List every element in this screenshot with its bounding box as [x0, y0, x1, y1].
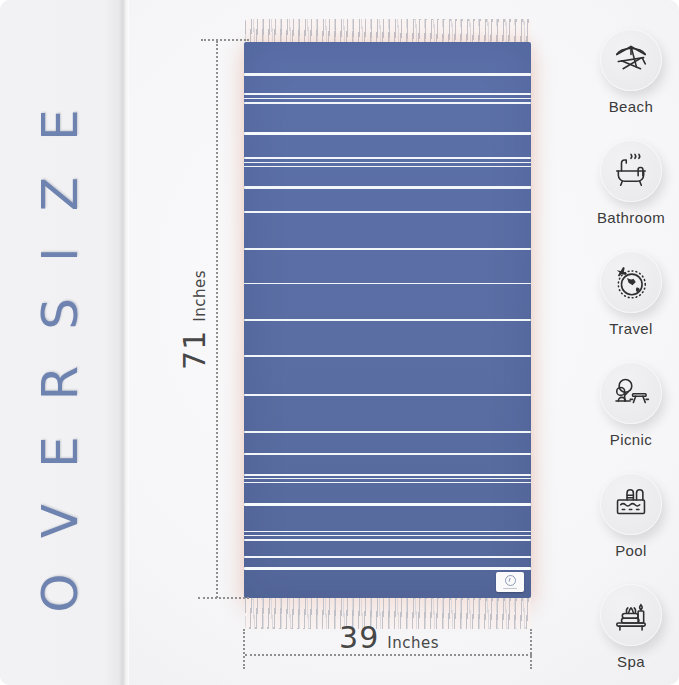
towel-stripe — [244, 474, 531, 476]
use-case-label: Beach — [609, 98, 654, 115]
picnic-icon — [600, 362, 662, 424]
product-infographic: OVERSIZE 71 Inches 39 Inches Beach Bathr… — [0, 0, 679, 685]
towel-stripe — [244, 211, 531, 213]
use-case-label: Picnic — [610, 431, 652, 448]
towel-stripe — [244, 482, 531, 484]
oversize-label: OVERSIZE — [31, 73, 89, 612]
use-case-label: Bathroom — [597, 209, 665, 226]
use-case-label: Pool — [615, 542, 647, 559]
towel-stripe — [244, 186, 531, 189]
beach-icon — [600, 29, 662, 91]
height-unit: Inches — [191, 270, 209, 322]
towel-stripe — [244, 567, 531, 570]
towel-stripe — [244, 539, 531, 541]
towel-stripe — [244, 102, 531, 104]
oversize-panel: OVERSIZE — [0, 0, 127, 685]
spa-icon — [600, 584, 662, 646]
height-value: 71 — [177, 330, 212, 370]
use-case-item: Bathroom — [597, 140, 665, 226]
use-case-label: Spa — [617, 653, 645, 670]
towel-stripe — [244, 248, 531, 250]
towel-stripe — [244, 453, 531, 456]
width-unit: Inches — [387, 634, 439, 652]
towel-stripe — [244, 531, 531, 533]
use-case-item: Pool — [600, 473, 662, 559]
towel-stripe — [244, 157, 531, 159]
use-case-item: Picnic — [600, 362, 662, 448]
towel-stripe — [244, 283, 531, 285]
height-dimension-tick-bottom — [198, 597, 249, 599]
towel-stripe — [244, 93, 531, 95]
towel-stripe — [244, 431, 531, 433]
towel-stripe — [244, 535, 531, 536]
height-dimension-tick-top — [201, 39, 249, 41]
towel-stripe — [244, 394, 531, 396]
use-case-item: Beach — [600, 29, 662, 115]
towel-stripe — [244, 98, 531, 99]
page-fold-shadow — [119, 0, 129, 685]
towel-stripe — [244, 355, 531, 357]
towel-stripe — [244, 132, 531, 135]
brand-tag — [496, 572, 524, 592]
towel-stripe — [244, 162, 531, 163]
width-dimension-tick-right — [530, 629, 532, 669]
towel-stripe — [244, 319, 531, 322]
use-case-list: Beach Bathroom Travel Picnic Pool Spa — [584, 29, 678, 670]
towel-fringe-top — [245, 19, 531, 42]
towel-stripe — [244, 478, 531, 479]
pool-icon — [600, 473, 662, 535]
travel-icon — [600, 251, 662, 313]
towel-stripe — [244, 503, 531, 506]
width-value: 39 — [339, 620, 379, 655]
use-case-label: Travel — [609, 320, 653, 337]
towel-stripe — [244, 556, 531, 558]
width-dimension-tick-left — [243, 629, 245, 669]
towel-stripe — [244, 73, 531, 76]
towel-image — [244, 42, 531, 598]
use-case-item: Spa — [600, 584, 662, 670]
height-dimension-label: 71 Inches — [177, 270, 212, 370]
bathroom-icon — [600, 140, 662, 202]
use-case-item: Travel — [600, 251, 662, 337]
brand-logo-icon — [505, 575, 516, 586]
height-dimension-line — [216, 41, 218, 598]
width-dimension-label: 39 Inches — [339, 620, 439, 655]
brand-tag-text-line — [503, 588, 517, 590]
towel-stripe — [244, 166, 531, 168]
